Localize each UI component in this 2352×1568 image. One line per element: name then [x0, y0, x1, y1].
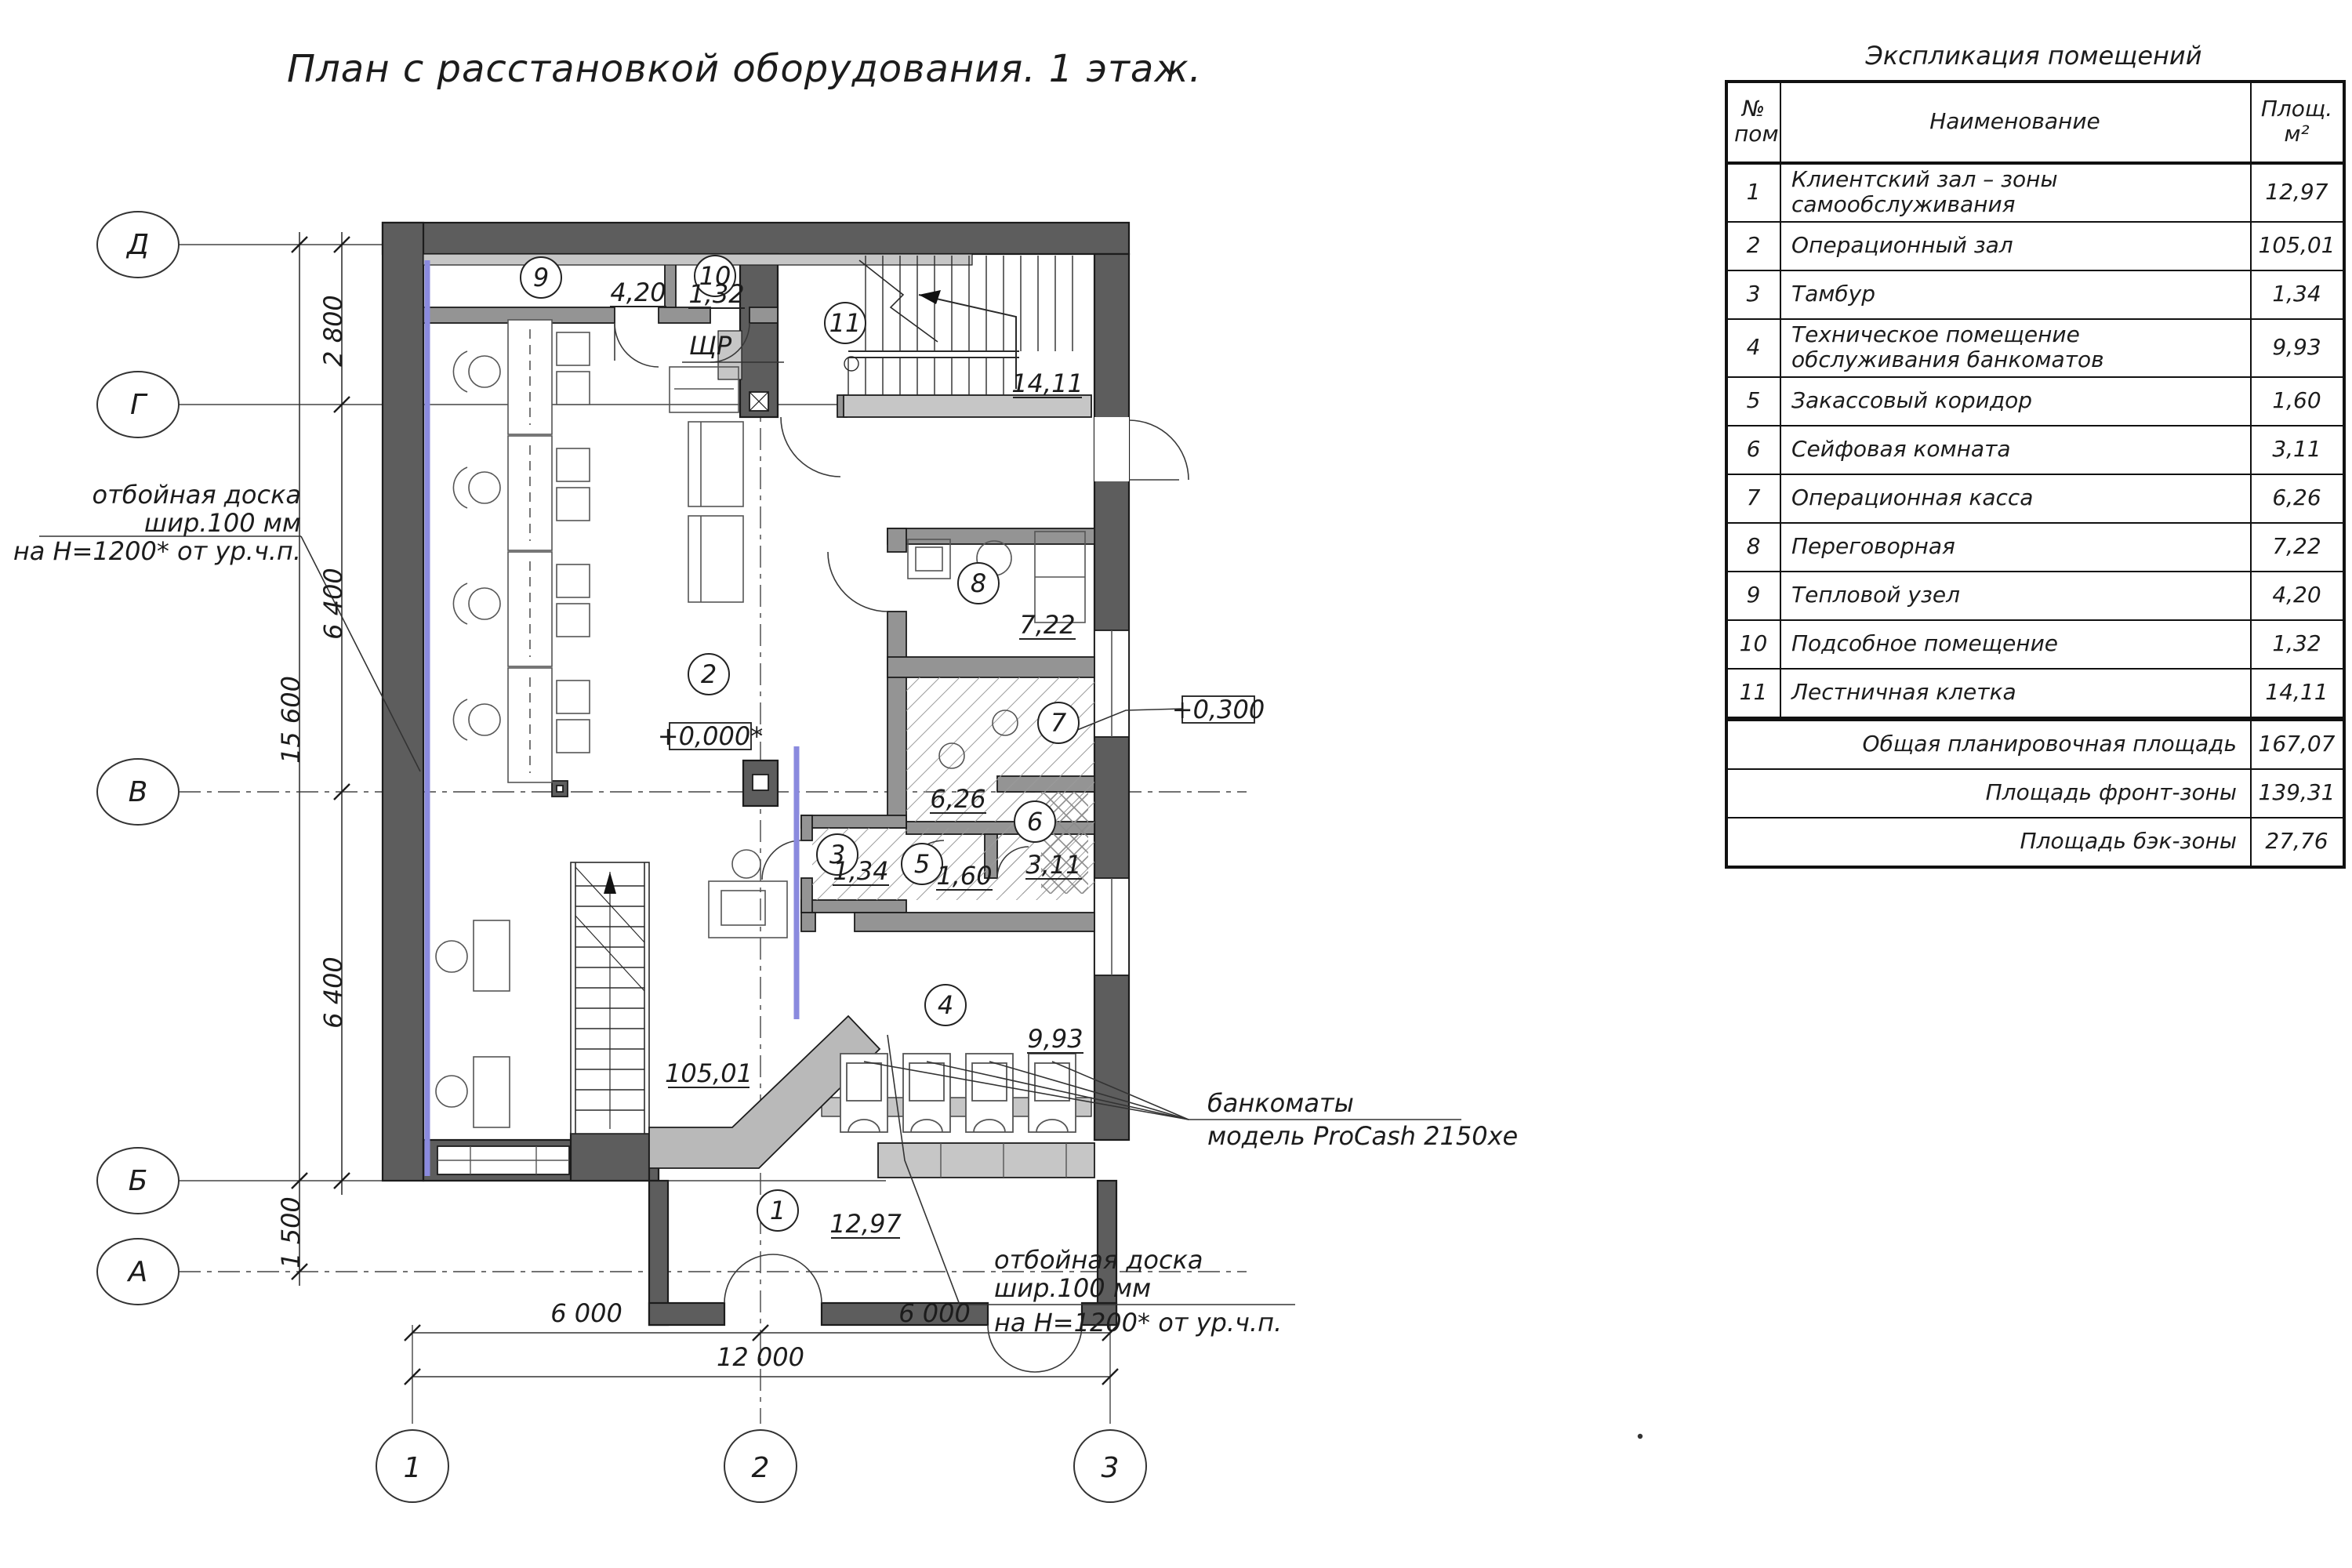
- svg-text:105,01: 105,01: [665, 1058, 753, 1088]
- room-area-cell: 1,34: [2250, 270, 2344, 319]
- room-area-cell: 12,97: [2250, 163, 2344, 222]
- col-header-num: №пом.: [1726, 82, 1780, 163]
- room-area-cell: 6,26: [2250, 475, 2344, 524]
- room-name-cell: Лестничная клетка: [1780, 670, 2250, 720]
- room-number-cell: 2: [1726, 222, 1780, 270]
- table-summary-row: Площадь бэк-зоны27,76: [1726, 818, 2344, 868]
- floor-plan-svg: ДГВБА123 2 8006 4006 40015 6001 5006 000…: [0, 0, 1756, 1568]
- svg-text:12,97: 12,97: [829, 1209, 902, 1239]
- room-name-cell: Операционная касса: [1780, 475, 2250, 524]
- table-row: 7Операционная касса6,26: [1726, 475, 2344, 524]
- hall-staircase: [571, 862, 649, 1134]
- room-number-cell: 8: [1726, 524, 1780, 572]
- explication-panel: Экспликация помещений №пом. Наименование…: [1725, 41, 2343, 869]
- svg-text:Д: Д: [125, 229, 149, 261]
- svg-text:8: 8: [971, 568, 986, 598]
- room-name-cell: Операционный зал: [1780, 222, 2250, 270]
- summary-value-cell: 167,07: [2250, 720, 2344, 770]
- svg-text:7,22: 7,22: [1019, 610, 1075, 640]
- annotation: ЩР: [689, 331, 732, 361]
- room-number-cell: 9: [1726, 572, 1780, 621]
- room-marker-2: 2105,01: [665, 654, 753, 1088]
- room-area-cell: 14,11: [2250, 670, 2344, 720]
- svg-text:3: 3: [1102, 1452, 1120, 1484]
- dim-label: 15 600: [276, 676, 306, 764]
- room-number-cell: 6: [1726, 426, 1780, 475]
- room-number-cell: 11: [1726, 670, 1780, 720]
- table-row: 8Переговорная7,22: [1726, 524, 2344, 572]
- dim-label: 6 000: [550, 1298, 622, 1328]
- svg-text:6,26: 6,26: [930, 784, 985, 814]
- svg-text:2: 2: [752, 1452, 770, 1484]
- room-area-cell: 3,11: [2250, 426, 2344, 475]
- svg-text:4,20: 4,20: [610, 278, 666, 307]
- svg-text:11: 11: [829, 308, 862, 338]
- room-name-cell: Техническое помещение обслуживания банко…: [1780, 319, 2250, 377]
- table-row: 10Подсобное помещение1,32: [1726, 621, 2344, 670]
- col-header-name: Наименование: [1780, 82, 2250, 163]
- svg-text:14,11: 14,11: [1011, 368, 1083, 398]
- annotation: +0,000*: [658, 721, 763, 751]
- table-row: 2Операционный зал105,01: [1726, 222, 2344, 270]
- svg-text:1,34: 1,34: [833, 856, 888, 886]
- svg-text:А: А: [127, 1256, 148, 1288]
- room-marker-4: 49,93: [925, 985, 1083, 1054]
- room-area-cell: 9,93: [2250, 319, 2344, 377]
- dim-label: 12 000: [717, 1342, 804, 1372]
- svg-text:1: 1: [404, 1452, 422, 1484]
- svg-text:Б: Б: [129, 1165, 148, 1197]
- summary-label-cell: Площадь бэк-зоны: [1726, 818, 2250, 868]
- svg-text:6: 6: [1027, 807, 1043, 837]
- svg-text:9,93: 9,93: [1027, 1024, 1083, 1054]
- summary-value-cell: 27,76: [2250, 818, 2344, 868]
- room-name-cell: Подсобное помещение: [1780, 621, 2250, 670]
- table-row: 3Тамбур1,34: [1726, 270, 2344, 319]
- table-row: 5Закассовый коридор1,60: [1726, 378, 2344, 426]
- table-row: 4Техническое помещение обслуживания банк…: [1726, 319, 2344, 377]
- table-row: 9Тепловой узел4,20: [1726, 572, 2344, 621]
- room-area-cell: 1,60: [2250, 378, 2344, 426]
- dim-label: 6 400: [318, 568, 348, 640]
- dim-label: 1 500: [276, 1196, 306, 1269]
- room-number-cell: 5: [1726, 378, 1780, 426]
- col-header-area: Площ.м²: [2250, 82, 2344, 163]
- annotation: на Н=1200* от ур.ч.п.: [994, 1308, 1282, 1338]
- annotation-texts: отбойная доскашир.100 ммна Н=1200* от ур…: [13, 331, 1518, 1338]
- svg-text:5: 5: [914, 849, 930, 879]
- room-marker-1: 112,97: [757, 1190, 902, 1239]
- summary-label-cell: Общая планировочная площадь: [1726, 720, 2250, 770]
- room-area-cell: 7,22: [2250, 524, 2344, 572]
- summary-label-cell: Площадь фронт-зоны: [1726, 770, 2250, 818]
- room-number-cell: 1: [1726, 163, 1780, 222]
- svg-text:В: В: [129, 776, 148, 808]
- svg-text:7: 7: [1051, 708, 1067, 738]
- table-summary-row: Общая планировочная площадь167,07: [1726, 720, 2344, 770]
- dim-label: 6 000: [898, 1298, 971, 1328]
- stray-dot: [1638, 1434, 1642, 1439]
- room-name-cell: Сейфовая комната: [1780, 426, 2250, 475]
- svg-text:Г: Г: [130, 389, 148, 421]
- annotation: модель ProCash 2150xe: [1207, 1121, 1518, 1151]
- room-name-cell: Закассовый коридор: [1780, 378, 2250, 426]
- annotation: банкоматы: [1207, 1088, 1354, 1118]
- room-name-cell: Клиентский зал – зоны самообслуживания: [1780, 163, 2250, 222]
- table-title: Экспликация помещений: [1725, 41, 2343, 71]
- room-area-cell: 4,20: [2250, 572, 2344, 621]
- room-marker-8: 87,22: [958, 563, 1076, 640]
- teller-stations: [453, 320, 590, 782]
- table-summary-row: Площадь фронт-зоны139,31: [1726, 770, 2344, 818]
- svg-text:3,11: 3,11: [1025, 850, 1081, 880]
- explication-table: №пом. Наименование Площ.м² 1Клиентский з…: [1725, 80, 2346, 869]
- annotation: отбойная доскашир.100 мм: [92, 480, 301, 538]
- table-row: 1Клиентский зал – зоны самообслуживания1…: [1726, 163, 2344, 222]
- room-number-cell: 3: [1726, 270, 1780, 319]
- dim-label: 6 400: [318, 956, 348, 1029]
- annotation: на Н=1200* от ур.ч.п.: [13, 536, 301, 566]
- summary-value-cell: 139,31: [2250, 770, 2344, 818]
- table-row: 6Сейфовая комната3,11: [1726, 426, 2344, 475]
- room-name-cell: Тепловой узел: [1780, 572, 2250, 621]
- room-name-cell: Тамбур: [1780, 270, 2250, 319]
- room-area-cell: 1,32: [2250, 621, 2344, 670]
- svg-text:2: 2: [701, 659, 717, 689]
- table-row: 11Лестничная клетка14,11: [1726, 670, 2344, 720]
- svg-text:1,60: 1,60: [936, 861, 992, 891]
- room-area-cell: 105,01: [2250, 222, 2344, 270]
- room-number-cell: 4: [1726, 319, 1780, 377]
- annotation: +0,300: [1172, 695, 1265, 724]
- dim-label: 2 800: [318, 295, 348, 367]
- room-number-cell: 7: [1726, 475, 1780, 524]
- room-number-cell: 10: [1726, 621, 1780, 670]
- room-name-cell: Переговорная: [1780, 524, 2250, 572]
- svg-text:1: 1: [770, 1196, 786, 1225]
- svg-text:4: 4: [938, 990, 953, 1020]
- annotation: отбойная доскашир.100 мм: [994, 1245, 1203, 1303]
- drawing-sheet: План с расстановкой оборудования. 1 этаж…: [0, 0, 2352, 1568]
- svg-text:1,32: 1,32: [688, 279, 744, 309]
- svg-text:9: 9: [533, 263, 549, 292]
